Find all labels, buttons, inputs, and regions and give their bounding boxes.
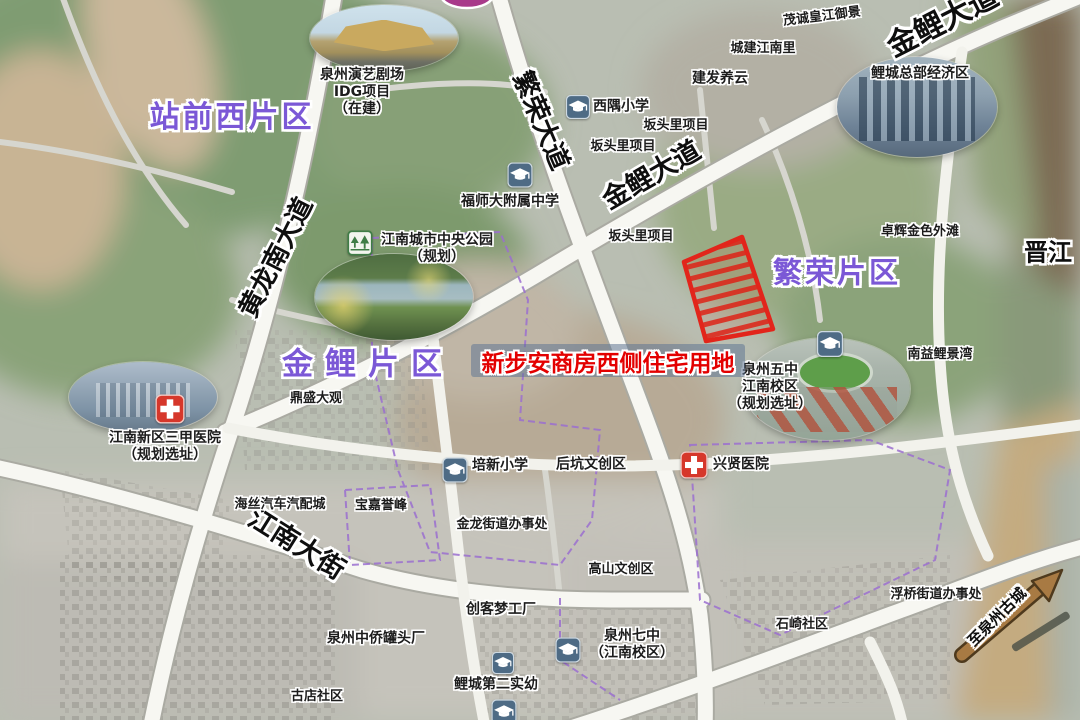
label-licheng-hq: 鲤城总部经济区	[871, 66, 969, 83]
label-bantouli-3: 坂头里项目	[608, 229, 673, 245]
label-licheng-kinder: 鲤城第二实幼	[454, 677, 538, 694]
label-qizhong: 泉州七中（江南校区）	[590, 628, 674, 662]
school-icon-fushida	[508, 163, 533, 188]
hospital-icon-3a	[156, 395, 185, 424]
road-label-fanrong-dadao: 繁荣大道	[505, 67, 574, 175]
label-xiyu-primary: 西隅小学	[593, 99, 649, 116]
label-dingsheng: 鼎盛大观	[290, 391, 342, 407]
photo-hospital-3a	[69, 362, 217, 432]
label-chengjian: 城建江南里	[730, 41, 795, 57]
label-nanyi: 南益鲤景湾	[907, 347, 972, 363]
hospital-icon-xingxian	[681, 452, 708, 479]
label-central-park: 江南城市中央公园（规划）	[381, 232, 493, 266]
label-gudian: 古店社区	[291, 689, 343, 705]
district-label-jinli: 金鲤片区	[282, 346, 454, 383]
label-chuangke: 创客梦工厂	[466, 602, 536, 619]
label-theater: 泉州演艺剧场IDG项目（在建）	[320, 67, 404, 117]
satellite-planning-map: 站前西片区金鲤片区繁荣片区繁荣大道金鲤大道金鲤大道黄龙南大道江南大街至泉州古城泉…	[0, 0, 1080, 720]
label-bantouli-2: 坂头里项目	[590, 139, 655, 155]
label-haisi-auto: 海丝汽车汽配城	[234, 497, 325, 513]
road-label-jiangnan-dajie: 江南大街	[242, 503, 351, 588]
label-shiqi: 石崎社区	[776, 617, 828, 633]
label-zhuohui: 卓辉金色外滩	[881, 224, 959, 240]
label-gaoshan: 高山文创区	[588, 562, 653, 578]
highlight-caption: 新步安商房西侧住宅用地	[471, 344, 745, 377]
school-icon-kinder-1	[492, 652, 514, 674]
school-icon-qizhong	[556, 638, 581, 663]
label-baojia: 宝嘉誉峰	[355, 498, 407, 514]
school-icon-peixin	[443, 458, 468, 483]
park-icon-central	[348, 231, 373, 256]
label-hospital-3a: 江南新区三甲医院（规划选址）	[109, 430, 221, 464]
label-fuqiao-office: 浮桥街道办事处	[890, 587, 981, 603]
label-jianfa: 建发养云	[692, 71, 748, 88]
school-icon-xiyu	[566, 95, 590, 119]
label-fushida: 福师大附属中学	[461, 194, 559, 211]
road-label-jinli-dadao-ne: 金鲤大道	[881, 0, 1004, 65]
road-label-huanglongnan: 黄龙南大道	[234, 193, 321, 323]
photo-theater	[310, 5, 458, 71]
label-bantouli-1: 坂头里项目	[643, 118, 708, 134]
district-label-zhanqianxi: 站前西片区	[150, 100, 315, 136]
label-houkeng: 后坑文创区	[556, 457, 626, 474]
photo-central-park	[315, 254, 473, 340]
label-maocheng: 茂诚皇江御景	[782, 5, 861, 30]
label-jinjiang-river: 晋江	[1024, 239, 1072, 268]
label-jinlong-office: 金龙街道办事处	[456, 517, 547, 533]
label-peixin-primary: 培新小学	[472, 458, 528, 475]
school-icon-wuzhong	[817, 331, 843, 357]
district-label-fanrong: 繁荣片区	[773, 256, 901, 291]
school-icon-kinder-2	[492, 700, 517, 720]
label-xingxian-hospital: 兴贤医院	[713, 457, 769, 474]
label-zhongqiao: 泉州中侨罐头厂	[327, 631, 425, 648]
